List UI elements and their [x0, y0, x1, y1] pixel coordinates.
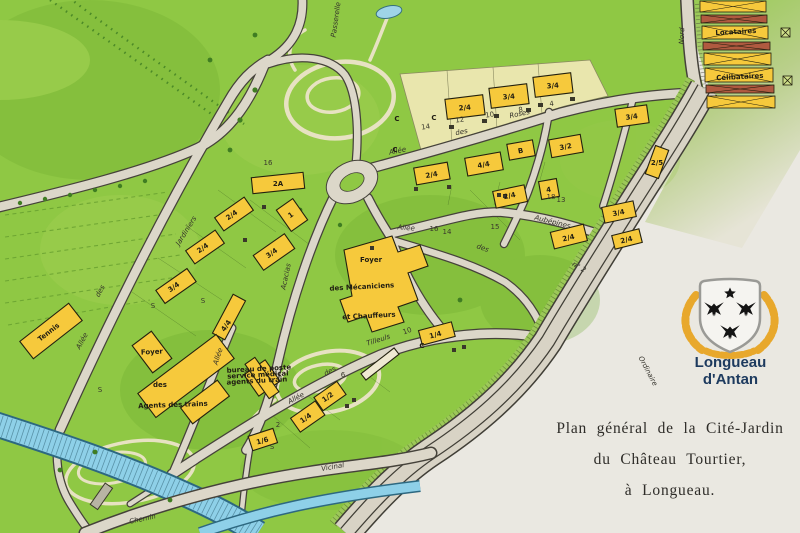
plot-label: 12 [455, 115, 465, 124]
logo-line1: Longueau [660, 355, 800, 372]
building-label: C [394, 115, 399, 123]
building-label: 3/4 [546, 81, 559, 90]
title-line1: Plan général de la Cité-Jardin [515, 413, 800, 444]
building-label: 2/4 [458, 103, 471, 112]
building-label: 2/5 [651, 159, 663, 167]
plot-label: 16 [430, 225, 439, 233]
plot-label: 14 [443, 228, 452, 236]
plot-label: 15 [491, 223, 500, 231]
plot-label: S [270, 443, 275, 451]
title-line3: à Longueau. [515, 475, 800, 506]
logo-wordmark: Longueau d'Antan [660, 355, 800, 388]
building-label: 3/4 [625, 112, 638, 122]
plot-label: S [201, 297, 206, 305]
map-title: Plan général de la Cité-Jardin du Châtea… [515, 413, 800, 506]
street-label: Nord [678, 27, 687, 45]
building-label: 2A [273, 180, 284, 188]
plot-label: 10 [485, 110, 495, 119]
map-page: AlléedesRosesAlléedesAubépinesAlléedesTi… [0, 0, 800, 533]
building-label: 3/4 [502, 92, 515, 101]
plot-label: S [151, 302, 156, 310]
building-label: C [392, 146, 397, 154]
building-label: des [153, 381, 167, 389]
plot-label: 16 [264, 159, 273, 167]
plot-label: 2 [276, 421, 280, 429]
title-line2: du Château Tourtier, [515, 444, 800, 475]
street-label: Allée [396, 223, 415, 232]
plot-label: 18 [547, 193, 556, 201]
building-label: C [431, 114, 436, 122]
plot-label: 14 [421, 122, 431, 131]
plot-label: S [98, 386, 103, 394]
logo-crest [685, 279, 774, 356]
plot-label: 13 [557, 196, 566, 204]
building-label: C [419, 342, 424, 350]
plot-label: 6 [341, 371, 346, 379]
building-label: Foyer [141, 347, 164, 356]
logo-line2: d'Antan [660, 372, 800, 389]
building-label: Foyer [360, 256, 383, 264]
